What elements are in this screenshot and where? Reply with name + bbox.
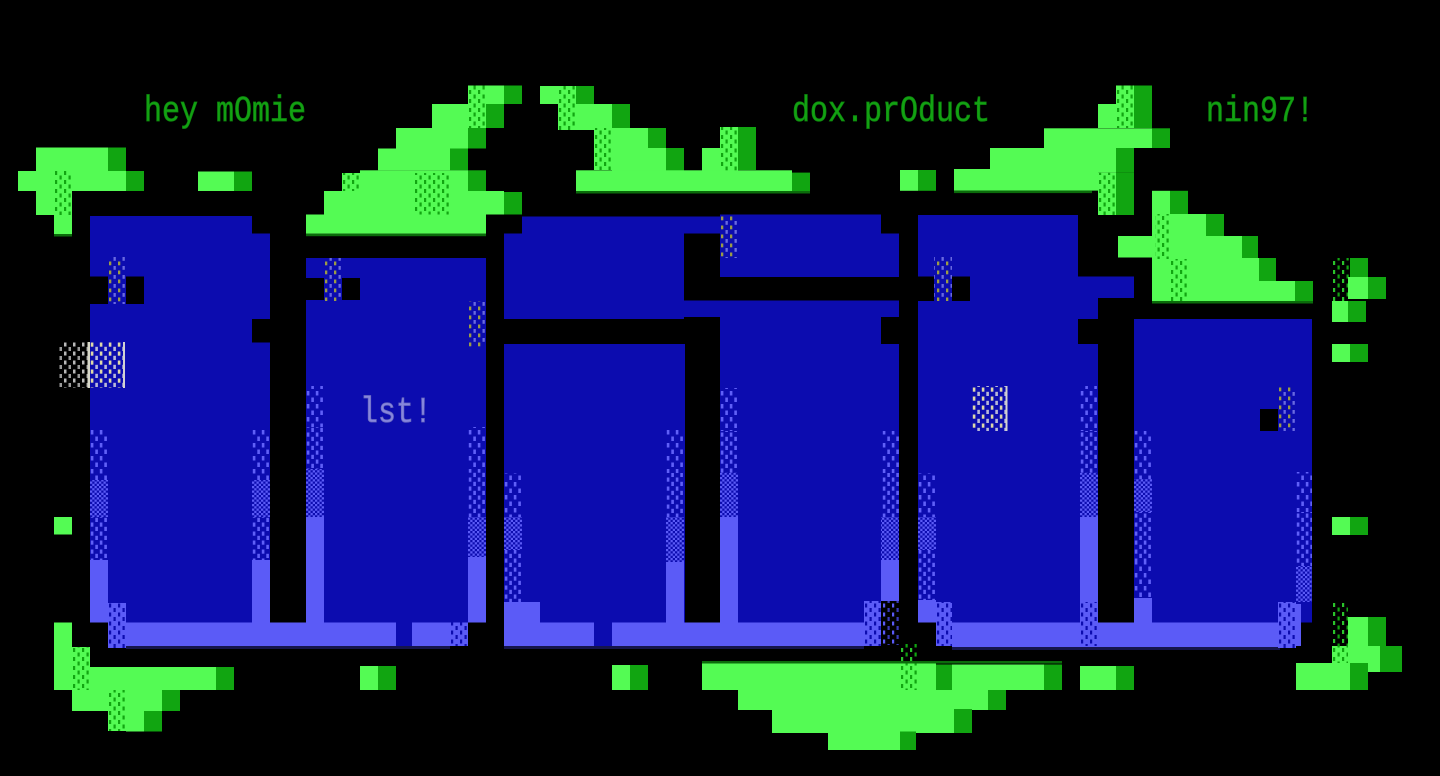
svg-text:lst!: lst! (360, 392, 432, 433)
svg-text:dox.prOduct: dox.prOduct (792, 91, 990, 132)
svg-text:nin97!: nin97! (1206, 91, 1314, 132)
svg-text:hey mOmie: hey mOmie (144, 91, 306, 132)
